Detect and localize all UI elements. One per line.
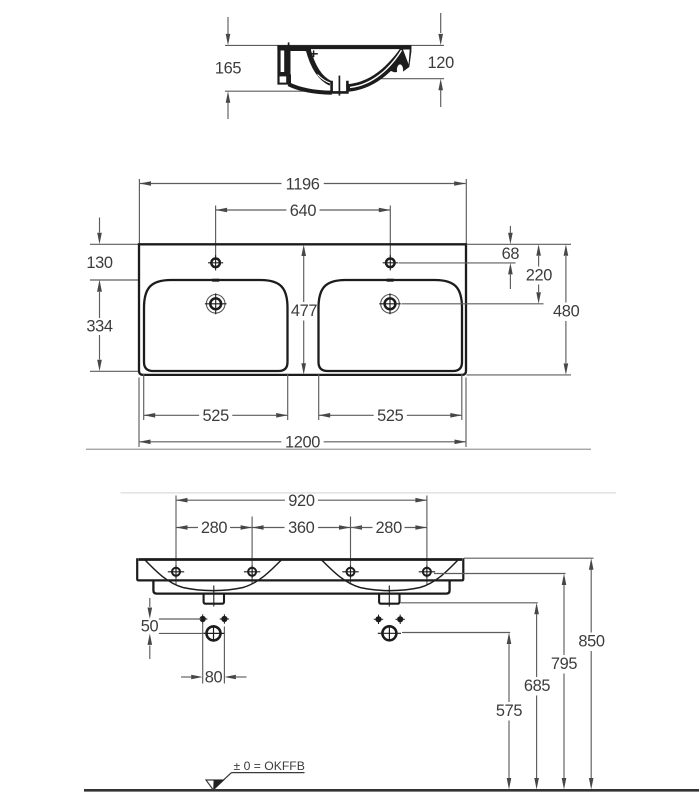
svg-text:50: 50: [141, 618, 159, 636]
svg-text:120: 120: [428, 54, 455, 72]
svg-text:220: 220: [526, 267, 553, 285]
svg-text:80: 80: [205, 669, 223, 687]
svg-text:280: 280: [376, 519, 403, 537]
svg-text:795: 795: [551, 655, 578, 673]
svg-text:525: 525: [377, 407, 404, 425]
svg-text:334: 334: [86, 318, 113, 336]
svg-text:850: 850: [578, 633, 605, 651]
svg-text:360: 360: [288, 519, 315, 537]
svg-text:165: 165: [215, 60, 242, 78]
svg-text:685: 685: [524, 677, 551, 695]
svg-text:640: 640: [290, 202, 317, 220]
svg-text:480: 480: [553, 303, 580, 321]
svg-text:1200: 1200: [285, 434, 320, 452]
svg-text:± 0 = OKFFB: ± 0 = OKFFB: [234, 759, 305, 773]
svg-text:1196: 1196: [286, 175, 320, 193]
svg-text:280: 280: [201, 519, 228, 537]
svg-text:130: 130: [86, 254, 113, 272]
svg-text:68: 68: [502, 245, 520, 263]
svg-text:525: 525: [203, 407, 230, 425]
svg-text:920: 920: [288, 492, 315, 510]
svg-text:575: 575: [496, 702, 523, 720]
svg-text:477: 477: [291, 302, 318, 320]
